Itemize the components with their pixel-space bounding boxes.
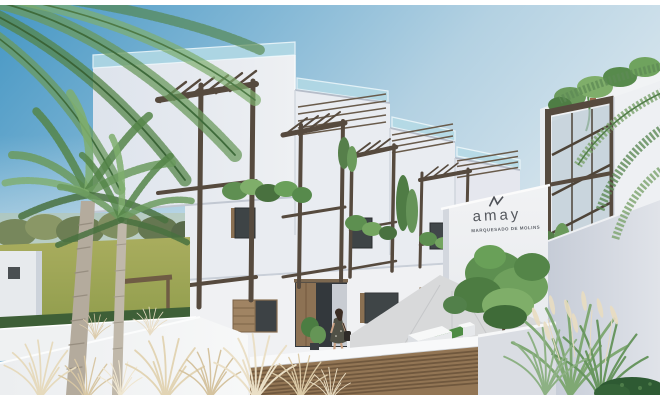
background-house [0,251,36,317]
scene-svg [0,5,660,395]
brand-wordmark: amay [449,205,546,227]
render-image: amay MARQUESADO DE MOLINS [0,0,660,403]
photo-area: amay MARQUESADO DE MOLINS [0,5,660,395]
project-name: MARQUESADO DE MOLINS [471,225,524,233]
project-sign: amay MARQUESADO DE MOLINS [448,194,546,238]
